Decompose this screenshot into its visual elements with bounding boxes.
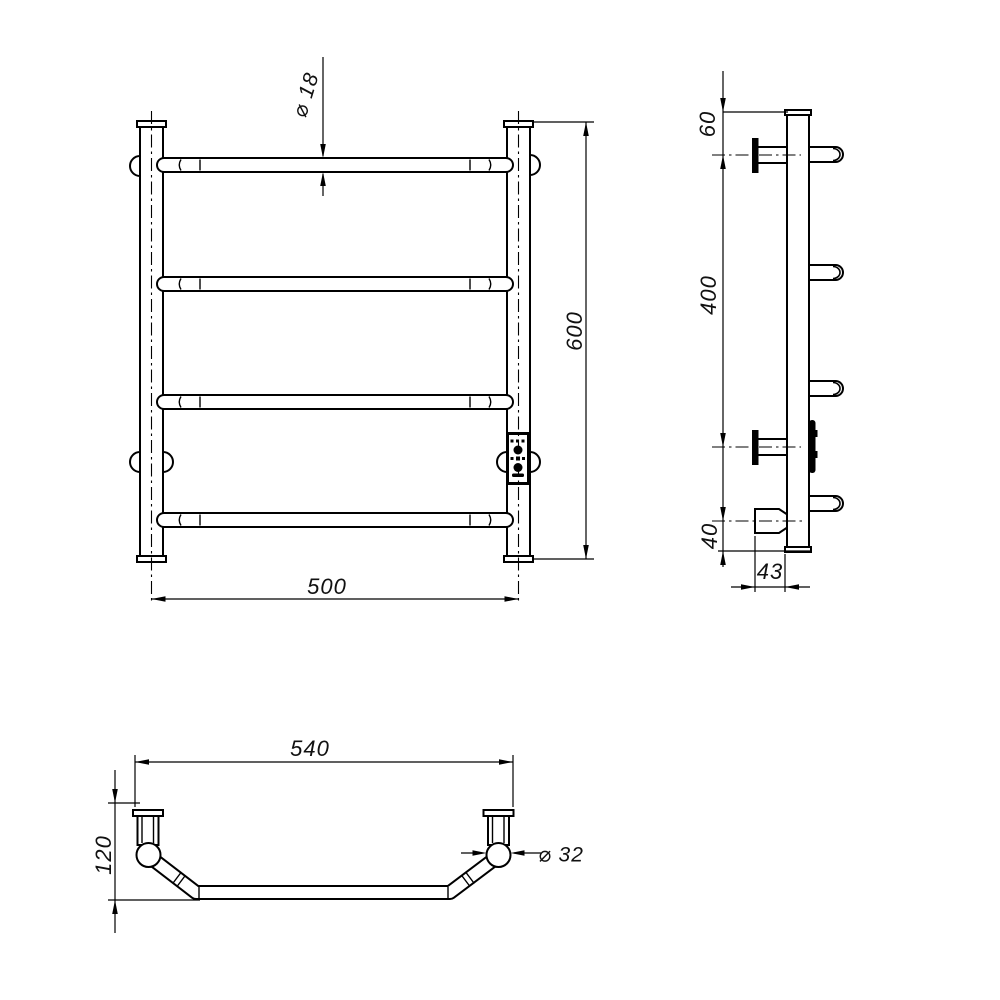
dim-bottom-offset-label: 40	[697, 523, 723, 549]
front-centerlines	[152, 111, 519, 604]
front-wall-brackets	[130, 155, 540, 472]
bar-seams	[179, 160, 491, 526]
control-unit-side	[809, 420, 818, 473]
drawing-sheet: ⌀ 18 600 500 60 400 40 43 540 120 ⌀ 32	[0, 0, 1000, 1000]
mode-mark-icon	[522, 457, 525, 460]
indicator-led-icon	[511, 440, 514, 443]
side-post	[785, 110, 811, 552]
dim-overall-width-label: 540	[290, 736, 330, 762]
mode-mark-icon	[511, 457, 514, 460]
dim-width-label: 500	[307, 574, 347, 600]
dim-top-offset-label: 60	[695, 111, 721, 137]
indicator-led-icon	[522, 440, 525, 443]
dim-height-label: 600	[562, 311, 588, 351]
front-bars	[157, 158, 513, 527]
towel-rail-drawing	[0, 0, 1000, 1000]
bottom-right-post	[484, 810, 514, 867]
bottom-bar-tube	[149, 856, 499, 899]
side-view	[712, 71, 843, 592]
dim-depth-label: 120	[91, 835, 117, 875]
dim-depth-offset-label: 43	[757, 559, 783, 585]
dim-post-diameter-label: ⌀ 32	[538, 843, 584, 868]
dim-bracket-span-label: 400	[696, 275, 722, 315]
front-view	[130, 57, 594, 604]
bottom-view	[108, 755, 541, 933]
dim-overall-width-540	[135, 755, 513, 807]
bottom-left-post	[133, 810, 163, 867]
